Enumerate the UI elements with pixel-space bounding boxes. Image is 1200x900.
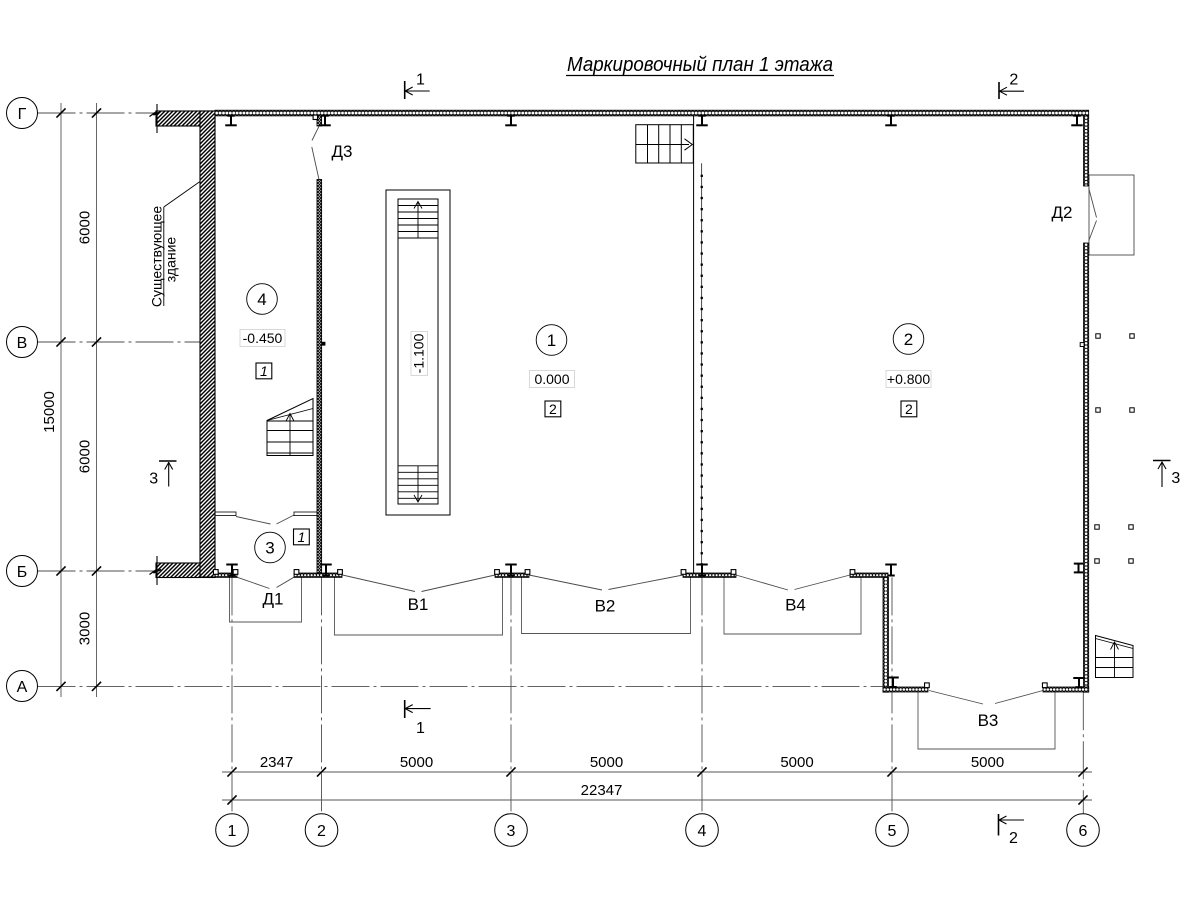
svg-text:2: 2 xyxy=(904,330,913,349)
svg-text:В3: В3 xyxy=(978,711,999,730)
svg-text:-0.450: -0.450 xyxy=(243,330,283,346)
svg-text:3: 3 xyxy=(1171,470,1180,487)
svg-text:здание: здание xyxy=(163,237,179,283)
svg-text:1: 1 xyxy=(298,529,306,545)
svg-text:Маркировочный план 1 этажа: Маркировочный план 1 этажа xyxy=(567,53,833,76)
svg-text:В1: В1 xyxy=(408,595,429,614)
svg-text:3: 3 xyxy=(265,539,274,558)
svg-text:6000: 6000 xyxy=(77,440,94,473)
svg-text:2: 2 xyxy=(549,401,557,417)
svg-text:4: 4 xyxy=(698,823,707,840)
svg-text:2: 2 xyxy=(1009,72,1018,89)
svg-text:3000: 3000 xyxy=(77,612,94,645)
svg-text:1: 1 xyxy=(260,363,268,379)
svg-text:6: 6 xyxy=(1079,823,1088,840)
svg-text:Г: Г xyxy=(18,106,27,123)
svg-text:+0.800: +0.800 xyxy=(887,371,930,387)
svg-text:А: А xyxy=(17,679,28,696)
svg-text:Д2: Д2 xyxy=(1052,203,1073,222)
svg-text:Д1: Д1 xyxy=(263,590,284,609)
svg-text:2: 2 xyxy=(1009,830,1018,847)
svg-text:4: 4 xyxy=(257,290,266,309)
svg-text:В2: В2 xyxy=(595,597,616,616)
svg-text:1: 1 xyxy=(547,331,556,350)
svg-text:5000: 5000 xyxy=(780,754,813,771)
svg-text:22347: 22347 xyxy=(581,782,623,799)
svg-text:1: 1 xyxy=(228,823,237,840)
svg-text:2: 2 xyxy=(905,401,913,417)
svg-text:5: 5 xyxy=(888,823,897,840)
svg-text:5000: 5000 xyxy=(590,754,623,771)
svg-text:1: 1 xyxy=(416,720,425,737)
svg-text:6000: 6000 xyxy=(77,211,94,244)
svg-text:В4: В4 xyxy=(785,596,806,615)
svg-text:3: 3 xyxy=(507,823,516,840)
svg-text:5000: 5000 xyxy=(971,754,1004,771)
svg-text:5000: 5000 xyxy=(400,754,433,771)
svg-text:-1.100: -1.100 xyxy=(411,333,427,373)
svg-text:1: 1 xyxy=(416,72,425,89)
svg-text:3: 3 xyxy=(149,471,158,488)
svg-text:В: В xyxy=(17,335,28,352)
svg-text:2: 2 xyxy=(317,823,326,840)
svg-text:Б: Б xyxy=(17,564,28,581)
svg-text:2347: 2347 xyxy=(260,754,293,771)
svg-text:0.000: 0.000 xyxy=(534,371,569,387)
svg-text:15000: 15000 xyxy=(41,391,58,433)
svg-text:Д3: Д3 xyxy=(332,142,353,161)
